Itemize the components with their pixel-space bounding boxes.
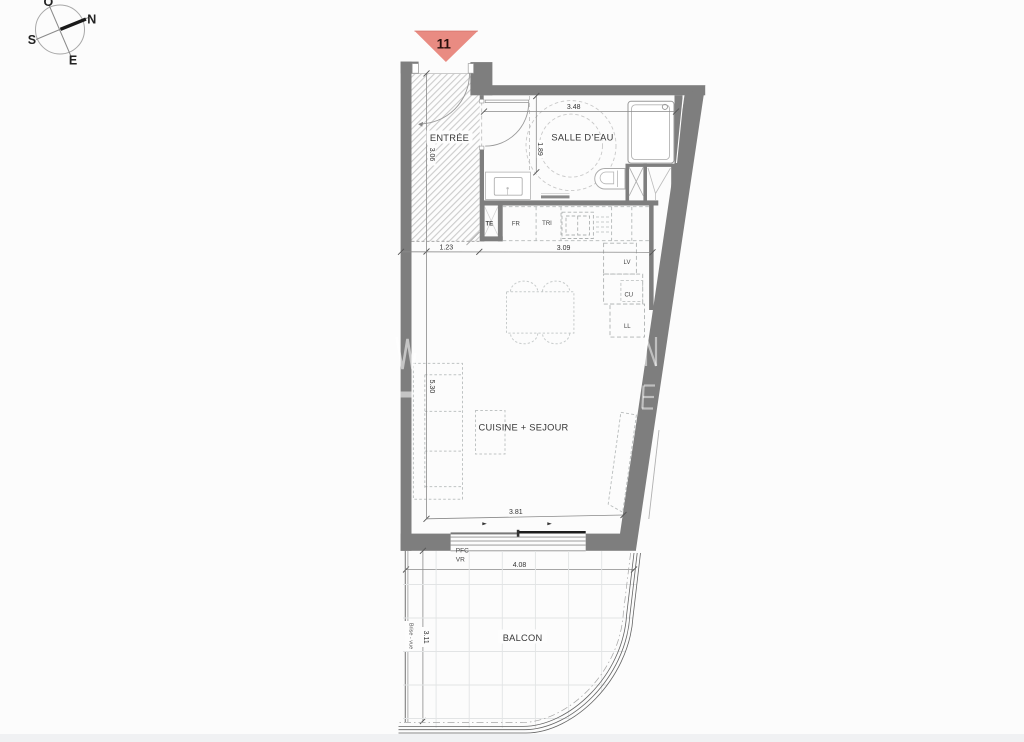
svg-text:LL: LL (624, 324, 631, 330)
svg-text:S: S (28, 33, 36, 47)
svg-text:SALLE D’EAU: SALLE D’EAU (551, 132, 613, 142)
svg-text:TE: TE (485, 222, 493, 228)
svg-text:3.81: 3.81 (509, 509, 523, 516)
svg-text:1.23: 1.23 (439, 245, 453, 252)
svg-text:3.11: 3.11 (422, 631, 429, 644)
svg-text:FR: FR (512, 221, 521, 227)
svg-text:3.09: 3.09 (557, 245, 571, 252)
svg-text:CU: CU (624, 292, 633, 298)
svg-text:VR: VR (456, 556, 465, 563)
svg-text:LV: LV (624, 260, 631, 266)
svg-text:Brise - vue: Brise - vue (407, 623, 413, 649)
svg-text:BALCON: BALCON (503, 633, 543, 643)
svg-text:N: N (87, 13, 96, 27)
svg-text:5.30: 5.30 (428, 380, 435, 394)
svg-text:11: 11 (437, 37, 452, 52)
svg-text:4.08: 4.08 (513, 562, 527, 569)
svg-text:TRI: TRI (542, 221, 552, 227)
svg-text:ENTRÉE: ENTRÉE (430, 133, 469, 143)
svg-text:O: O (44, 0, 54, 9)
svg-text:1.89: 1.89 (536, 142, 543, 156)
svg-text:PFC: PFC (456, 547, 469, 554)
svg-text:CUISINE + SEJOUR: CUISINE + SEJOUR (478, 423, 568, 433)
svg-text:3.06: 3.06 (428, 148, 435, 162)
svg-text:E: E (69, 54, 77, 68)
svg-text:3.48: 3.48 (567, 104, 581, 111)
